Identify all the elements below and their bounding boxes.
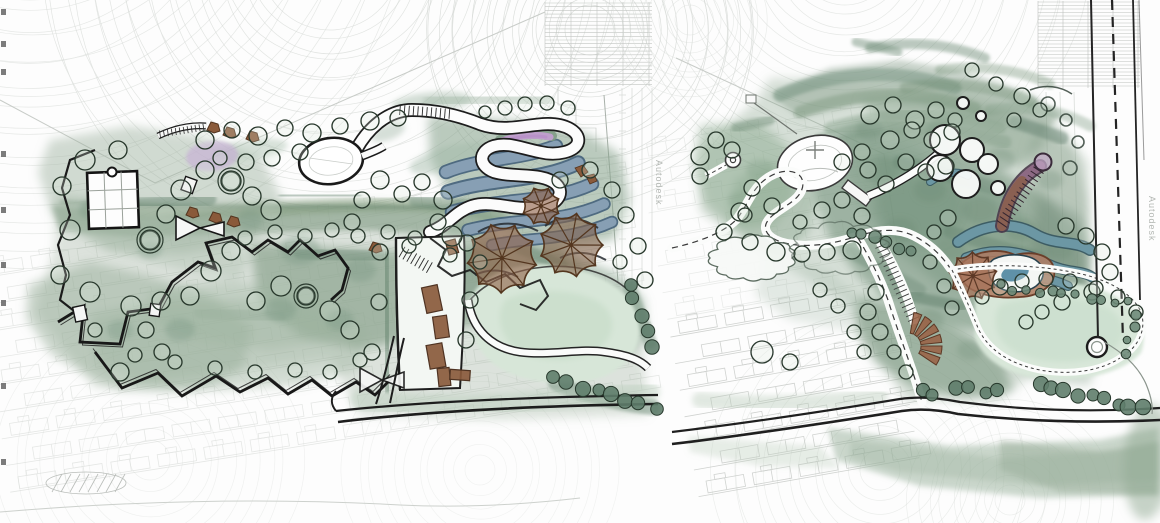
svg-text:Autodesk: Autodesk	[654, 160, 664, 206]
svg-text:Autodesk: Autodesk	[1147, 196, 1157, 242]
